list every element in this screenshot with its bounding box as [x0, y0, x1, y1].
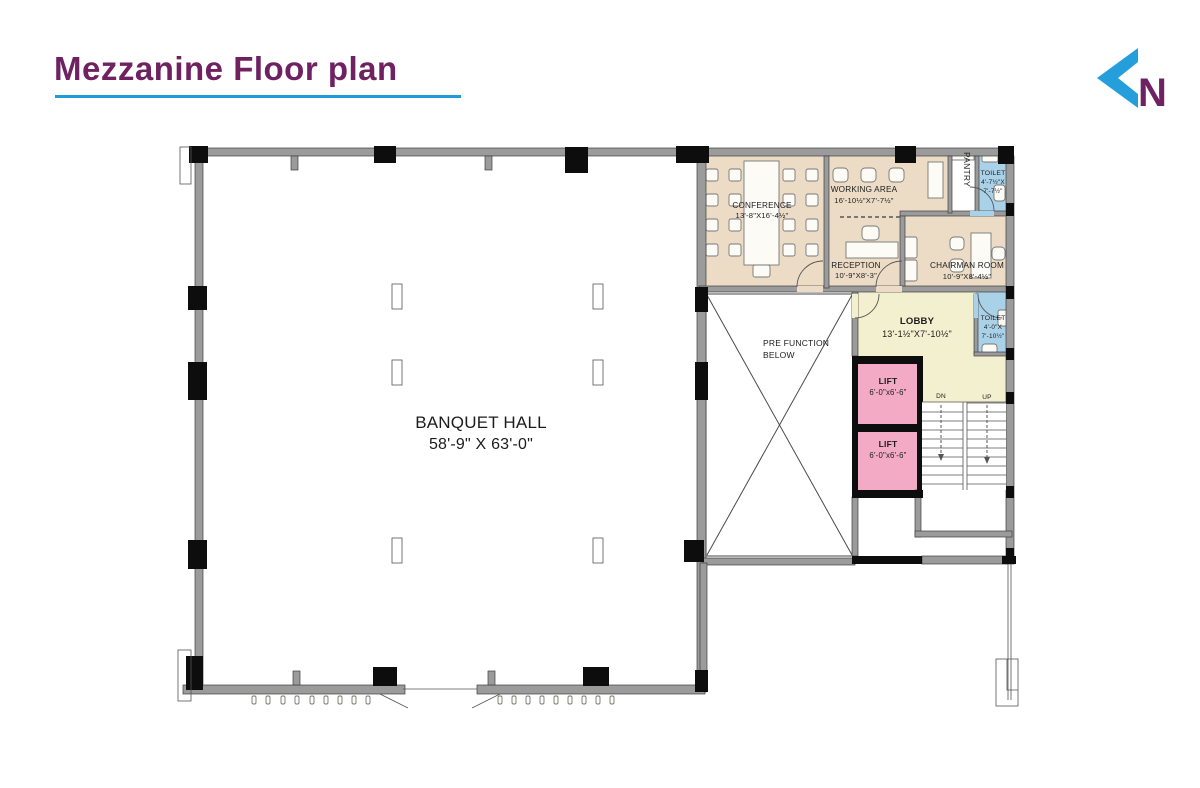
toilet-top-dims-2: 7'-7½": [983, 187, 1002, 195]
chairman-room-name: CHAIRMAN ROOM: [930, 261, 1004, 270]
chair: [861, 168, 876, 182]
lift-lower-dims: 6'-0"x6'-6": [869, 451, 906, 460]
banquet-hall-dims: 58'-9" X 63'-0": [429, 436, 533, 453]
chair: [753, 265, 770, 277]
lobby-dims: 13'-1½"X7'-10½": [882, 329, 952, 339]
chair: [833, 168, 848, 182]
conference-name: CONFERENCE: [732, 201, 792, 210]
chair: [862, 226, 879, 240]
reception-dims: 10'-9"X8'-3": [835, 271, 877, 280]
conference-dims: 13'-8"X16'-4½": [736, 211, 789, 220]
reception-desk: [846, 242, 898, 258]
lift-upper-dims: 6'-0"x6'-6": [869, 388, 906, 397]
chair: [992, 247, 1005, 260]
toilet-lobby-dims-2: 7'-10½": [981, 332, 1004, 340]
banquet-hall-name: BANQUET HALL: [415, 413, 547, 432]
pre-function-line1: PRE FUNCTION: [763, 338, 829, 348]
staircase: [922, 402, 1006, 490]
toilet-top-dims-1: 4'-7½"X: [981, 178, 1005, 186]
chair: [950, 237, 964, 250]
reception-name: RECEPTION: [831, 261, 881, 270]
working-area-dims: 16'-10½"X7'-7½": [834, 196, 894, 205]
chairman-room-dims: 10'-9"X8'-4½": [943, 272, 992, 281]
pre-function-line2: BELOW: [763, 350, 795, 360]
boundary-line: [1008, 564, 1011, 700]
toilet-lobby-name: TOILET: [981, 315, 1006, 322]
vent-dots: [252, 696, 614, 704]
desk: [928, 162, 943, 198]
working-area-name: WORKING AREA: [831, 185, 898, 194]
lobby-name: LOBBY: [900, 316, 935, 327]
stairs-dn-label: DN: [936, 393, 946, 400]
chair: [889, 168, 904, 182]
pre-function-void: [706, 294, 853, 556]
pantry-name: PANTRY: [962, 152, 972, 187]
lift-upper-name: LIFT: [879, 376, 898, 386]
stairs-up-label: UP: [982, 394, 991, 401]
lift-lower-name: LIFT: [879, 439, 898, 449]
entrance-door-leaves: [380, 694, 500, 708]
floor-plan-canvas: BANQUET HALL 58'-9" X 63'-0" CONFERENCE …: [0, 0, 1200, 788]
toilet-lobby-dims-1: 4'-0"X: [984, 324, 1003, 331]
toilet-top-name: TOILET: [981, 170, 1006, 177]
